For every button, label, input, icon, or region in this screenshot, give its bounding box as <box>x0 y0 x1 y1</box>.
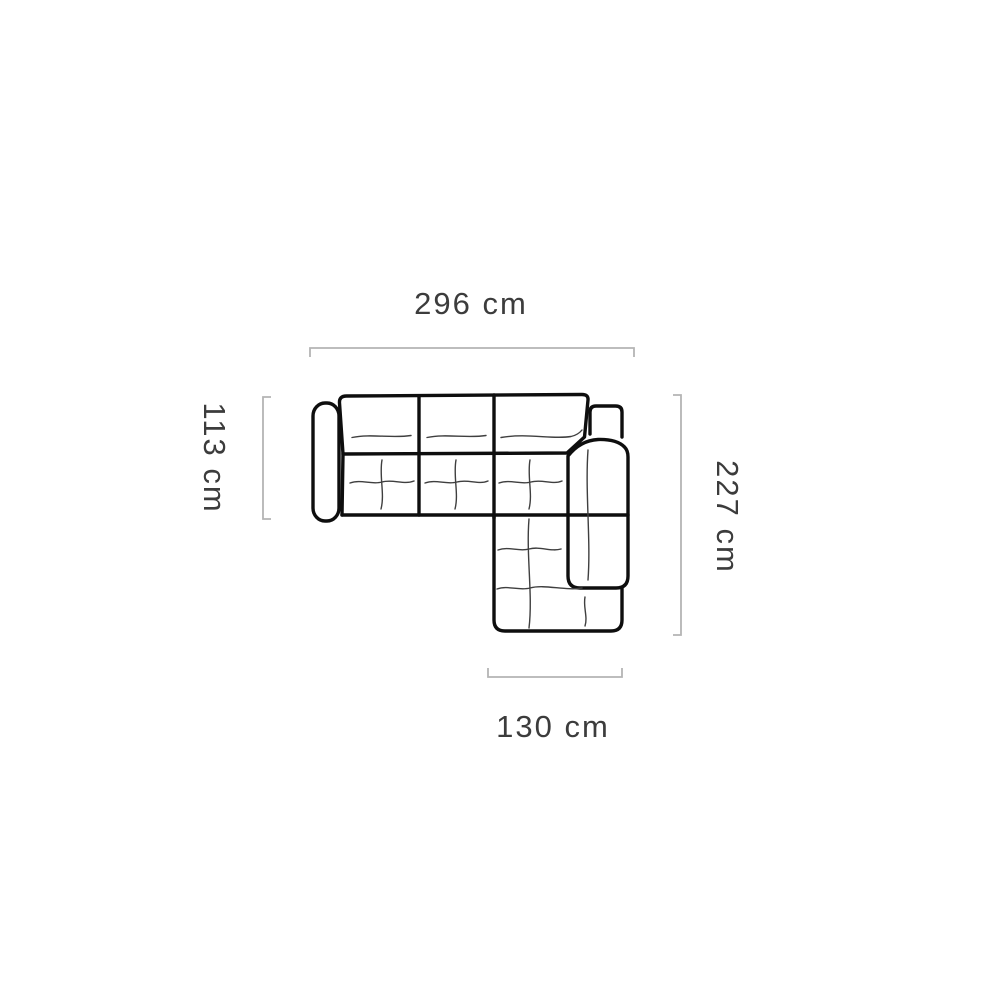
seat2-tuft-horizontal <box>425 481 488 483</box>
chaise-tuft-vertical <box>528 519 530 628</box>
dimension-line-right <box>673 395 681 635</box>
dimension-line-top <box>310 348 634 357</box>
seat3-tuft-horizontal <box>499 481 562 483</box>
dimension-label-top-width: 296 cm <box>371 284 571 324</box>
sofa-top-view-drawing <box>0 0 1000 1000</box>
sofa-outline <box>313 395 628 632</box>
seat1-tuft-horizontal <box>350 481 414 483</box>
chaise-corner-seam <box>585 597 586 626</box>
seat1-tuft-vertical <box>381 460 382 509</box>
backrest-seam-2 <box>427 436 486 438</box>
sofa-dimension-diagram: 296 cm 113 cm 227 cm 130 cm <box>0 0 1000 1000</box>
chaise-outline <box>494 516 622 631</box>
backrest-seam-3 <box>501 430 582 438</box>
tufting-lines <box>350 430 589 628</box>
dimension-line-left <box>263 397 271 519</box>
dimension-label-left-depth: 113 cm <box>194 358 234 558</box>
dimension-label-right-length: 227 cm <box>707 417 747 617</box>
seat2-tuft-vertical <box>455 460 456 509</box>
body-left-edge <box>342 454 343 515</box>
backrest-panel <box>339 395 588 455</box>
dimension-line-bottom <box>488 668 622 677</box>
dimension-label-bottom-chaise-width: 130 cm <box>453 707 653 747</box>
chaise-tuft-horizontal-2 <box>497 587 582 589</box>
backrest-seam-1 <box>352 436 411 438</box>
chaise-tuft-horizontal-1 <box>498 548 561 550</box>
seat3-tuft-vertical <box>529 460 530 509</box>
right-armrest-seam <box>587 450 589 580</box>
left-armrest <box>313 403 339 521</box>
corner-backrest-section <box>590 406 622 437</box>
